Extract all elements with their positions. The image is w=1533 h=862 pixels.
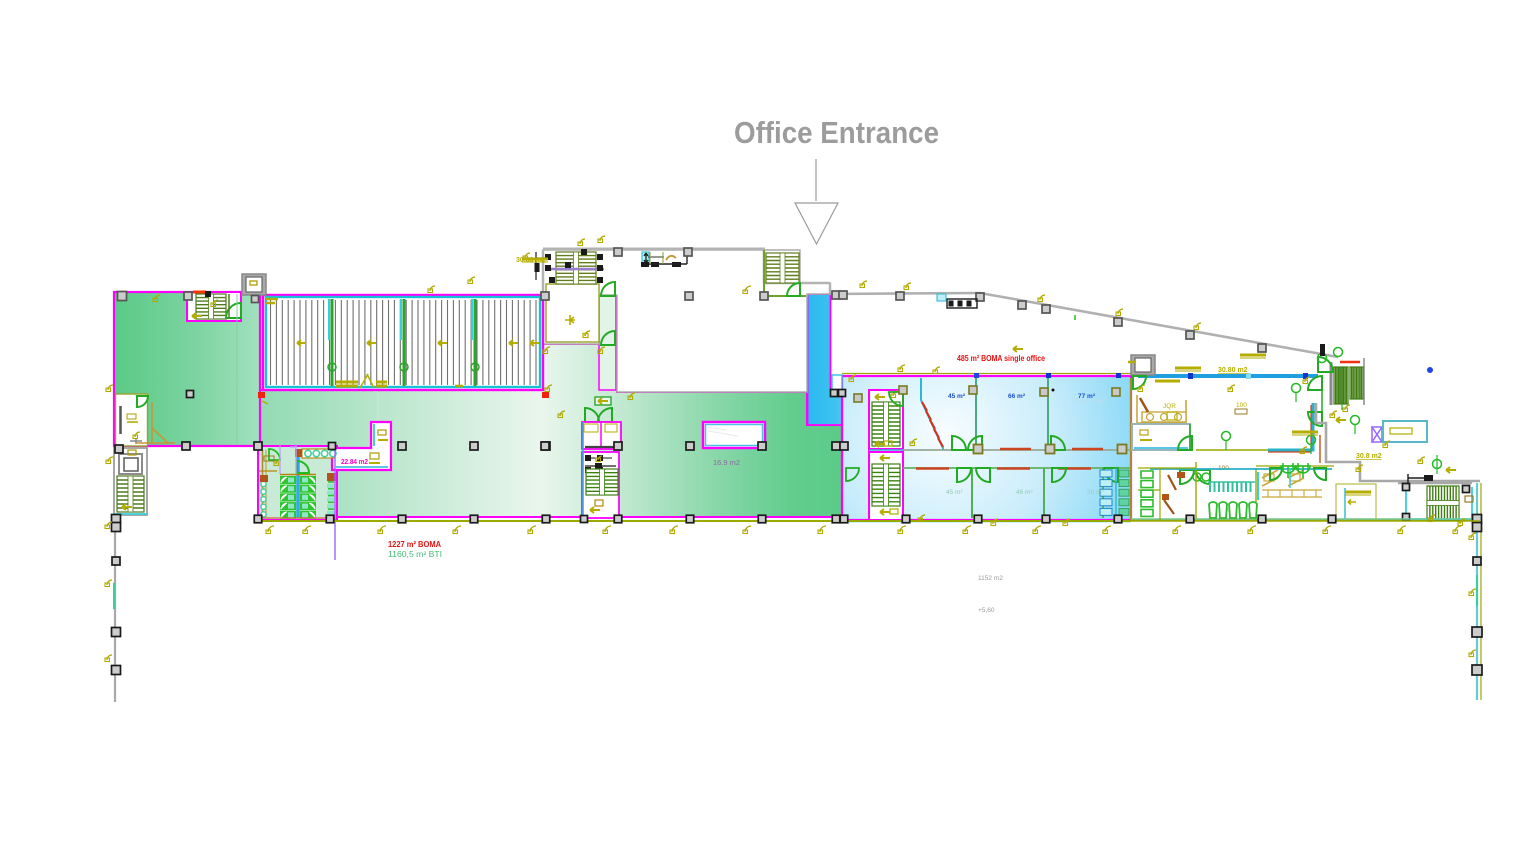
- svg-text:66 m²: 66 m²: [1008, 393, 1026, 400]
- svg-text:45 m²: 45 m²: [946, 489, 963, 496]
- svg-text:+5,60: +5,60: [978, 607, 995, 614]
- svg-text:1152 m2: 1152 m2: [978, 575, 1003, 582]
- svg-text:1227 m² BOMA: 1227 m² BOMA: [388, 539, 441, 549]
- svg-text:30.8 m2: 30.8 m2: [1356, 453, 1382, 460]
- svg-text:38 m²: 38 m²: [1087, 489, 1104, 496]
- svg-text:45 m²: 45 m²: [948, 393, 966, 400]
- svg-text:Office Entrance: Office Entrance: [734, 115, 939, 150]
- svg-text:22.84 m2: 22.84 m2: [341, 459, 368, 466]
- svg-text:16.9 m2: 16.9 m2: [713, 458, 740, 467]
- svg-text:485 m² BOMA single office: 485 m² BOMA single office: [957, 354, 1045, 363]
- svg-text:1160,5 m² BTI: 1160,5 m² BTI: [388, 550, 442, 559]
- svg-text:30.80 m2: 30.80 m2: [1218, 367, 1248, 374]
- svg-text:JQR: JQR: [1163, 403, 1176, 410]
- svg-text:73.44 m² BTI: 73.44 m² BTI: [1072, 399, 1107, 405]
- svg-text:100: 100: [1236, 402, 1247, 409]
- svg-text:46 m²: 46 m²: [1016, 489, 1033, 496]
